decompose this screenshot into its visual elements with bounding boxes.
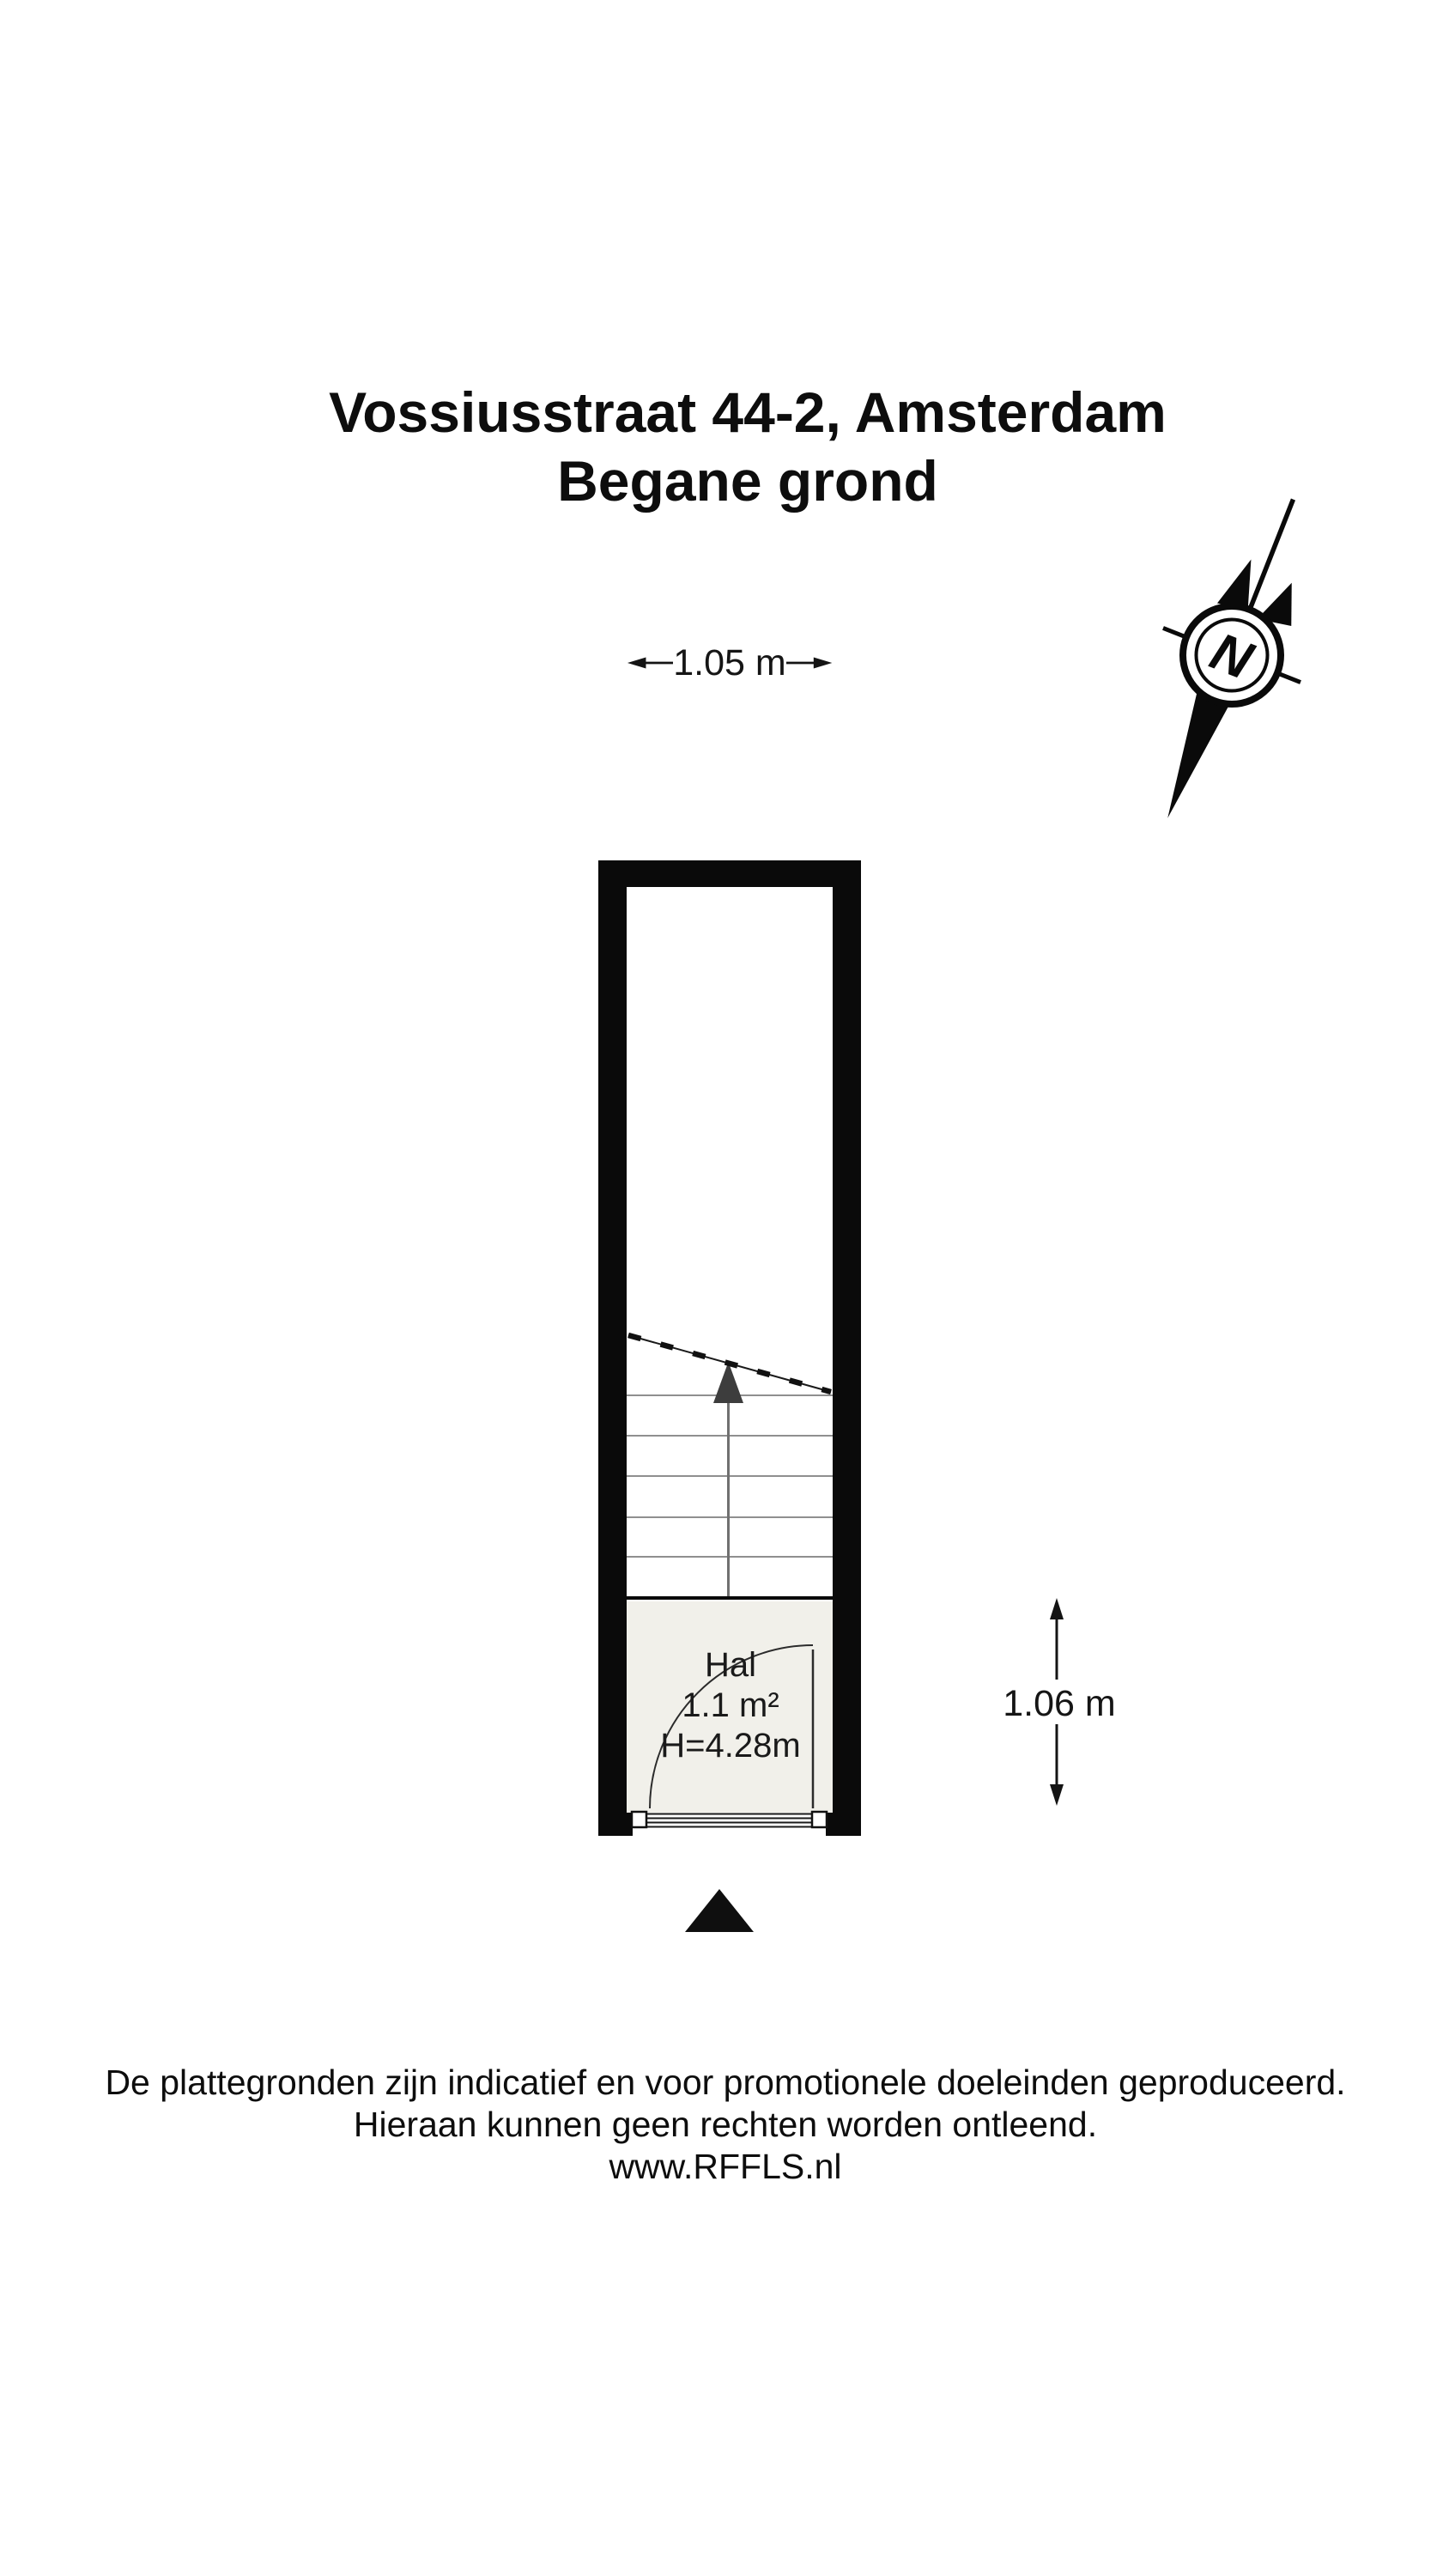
arrow-right-icon <box>786 655 833 671</box>
arrow-down-icon <box>1043 1724 1070 1807</box>
disclaimer-line-2: Hieraan kunnen geen rechten worden ontle… <box>0 2104 1449 2146</box>
door-jamb-right <box>812 1812 827 1827</box>
width-dimension-label: 1.05 m <box>673 642 785 684</box>
title-address: Vossiusstraat 44-2, Amsterdam <box>0 378 1449 447</box>
room-name: Hal <box>627 1645 834 1686</box>
width-dimension: 1.05 m <box>627 641 833 685</box>
door-jamb-left <box>632 1812 646 1827</box>
height-dimension-label: 1.06 m <box>990 1683 1129 1725</box>
arrow-left-icon <box>627 655 673 671</box>
arrow-up-icon <box>1043 1597 1070 1680</box>
room-ceiling-height: H=4.28m <box>627 1726 834 1766</box>
room-label: Hal 1.1 m² H=4.28m <box>627 1645 834 1766</box>
entrance-marker-icon <box>684 1888 755 1933</box>
disclaimer-line-1: De plattegronden zijn indicatief en voor… <box>0 2062 1449 2104</box>
floorplan-page: Vossiusstraat 44-2, Amsterdam Begane gro… <box>0 0 1449 2576</box>
north-compass-icon: N <box>1077 475 1318 835</box>
footer-website: www.RFFLS.nl <box>0 2146 1449 2188</box>
footer-disclaimer: De plattegronden zijn indicatief en voor… <box>0 2062 1449 2188</box>
room-area: 1.1 m² <box>627 1686 834 1726</box>
